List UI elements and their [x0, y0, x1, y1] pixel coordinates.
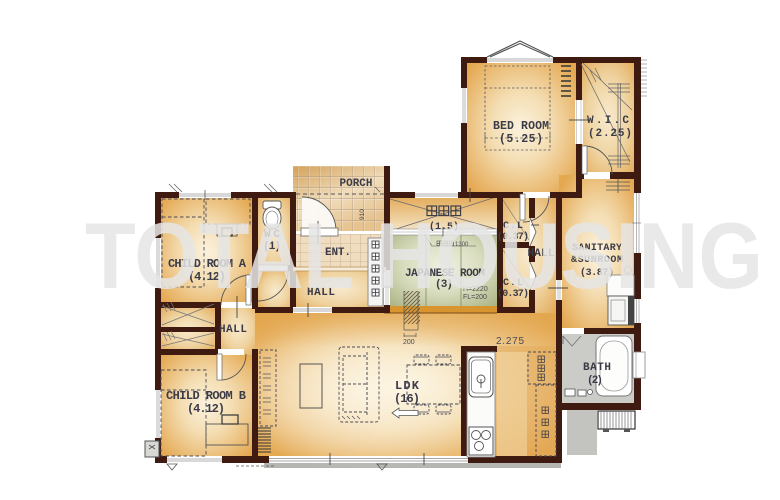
svg-text:PORCH: PORCH — [340, 178, 373, 190]
svg-text:HALL: HALL — [219, 324, 247, 336]
svg-text:2.275: 2.275 — [496, 336, 524, 347]
svg-text:(4.12): (4.12) — [187, 402, 225, 416]
svg-text:BATH: BATH — [583, 362, 611, 374]
svg-text:(5.25): (5.25) — [499, 133, 543, 146]
svg-text:(16): (16) — [394, 392, 420, 406]
svg-text:TOTAL HOUSING: TOTAL HOUSING — [85, 203, 763, 308]
svg-text:W.I.C: W.I.C — [587, 115, 629, 127]
svg-text:(2.25): (2.25) — [588, 128, 632, 140]
svg-text:CHILD ROOM B: CHILD ROOM B — [166, 389, 246, 403]
svg-text:LDK: LDK — [395, 379, 420, 393]
svg-text:BED ROOM: BED ROOM — [493, 120, 549, 133]
svg-text:(2): (2) — [587, 375, 603, 387]
svg-text:200: 200 — [403, 339, 415, 346]
